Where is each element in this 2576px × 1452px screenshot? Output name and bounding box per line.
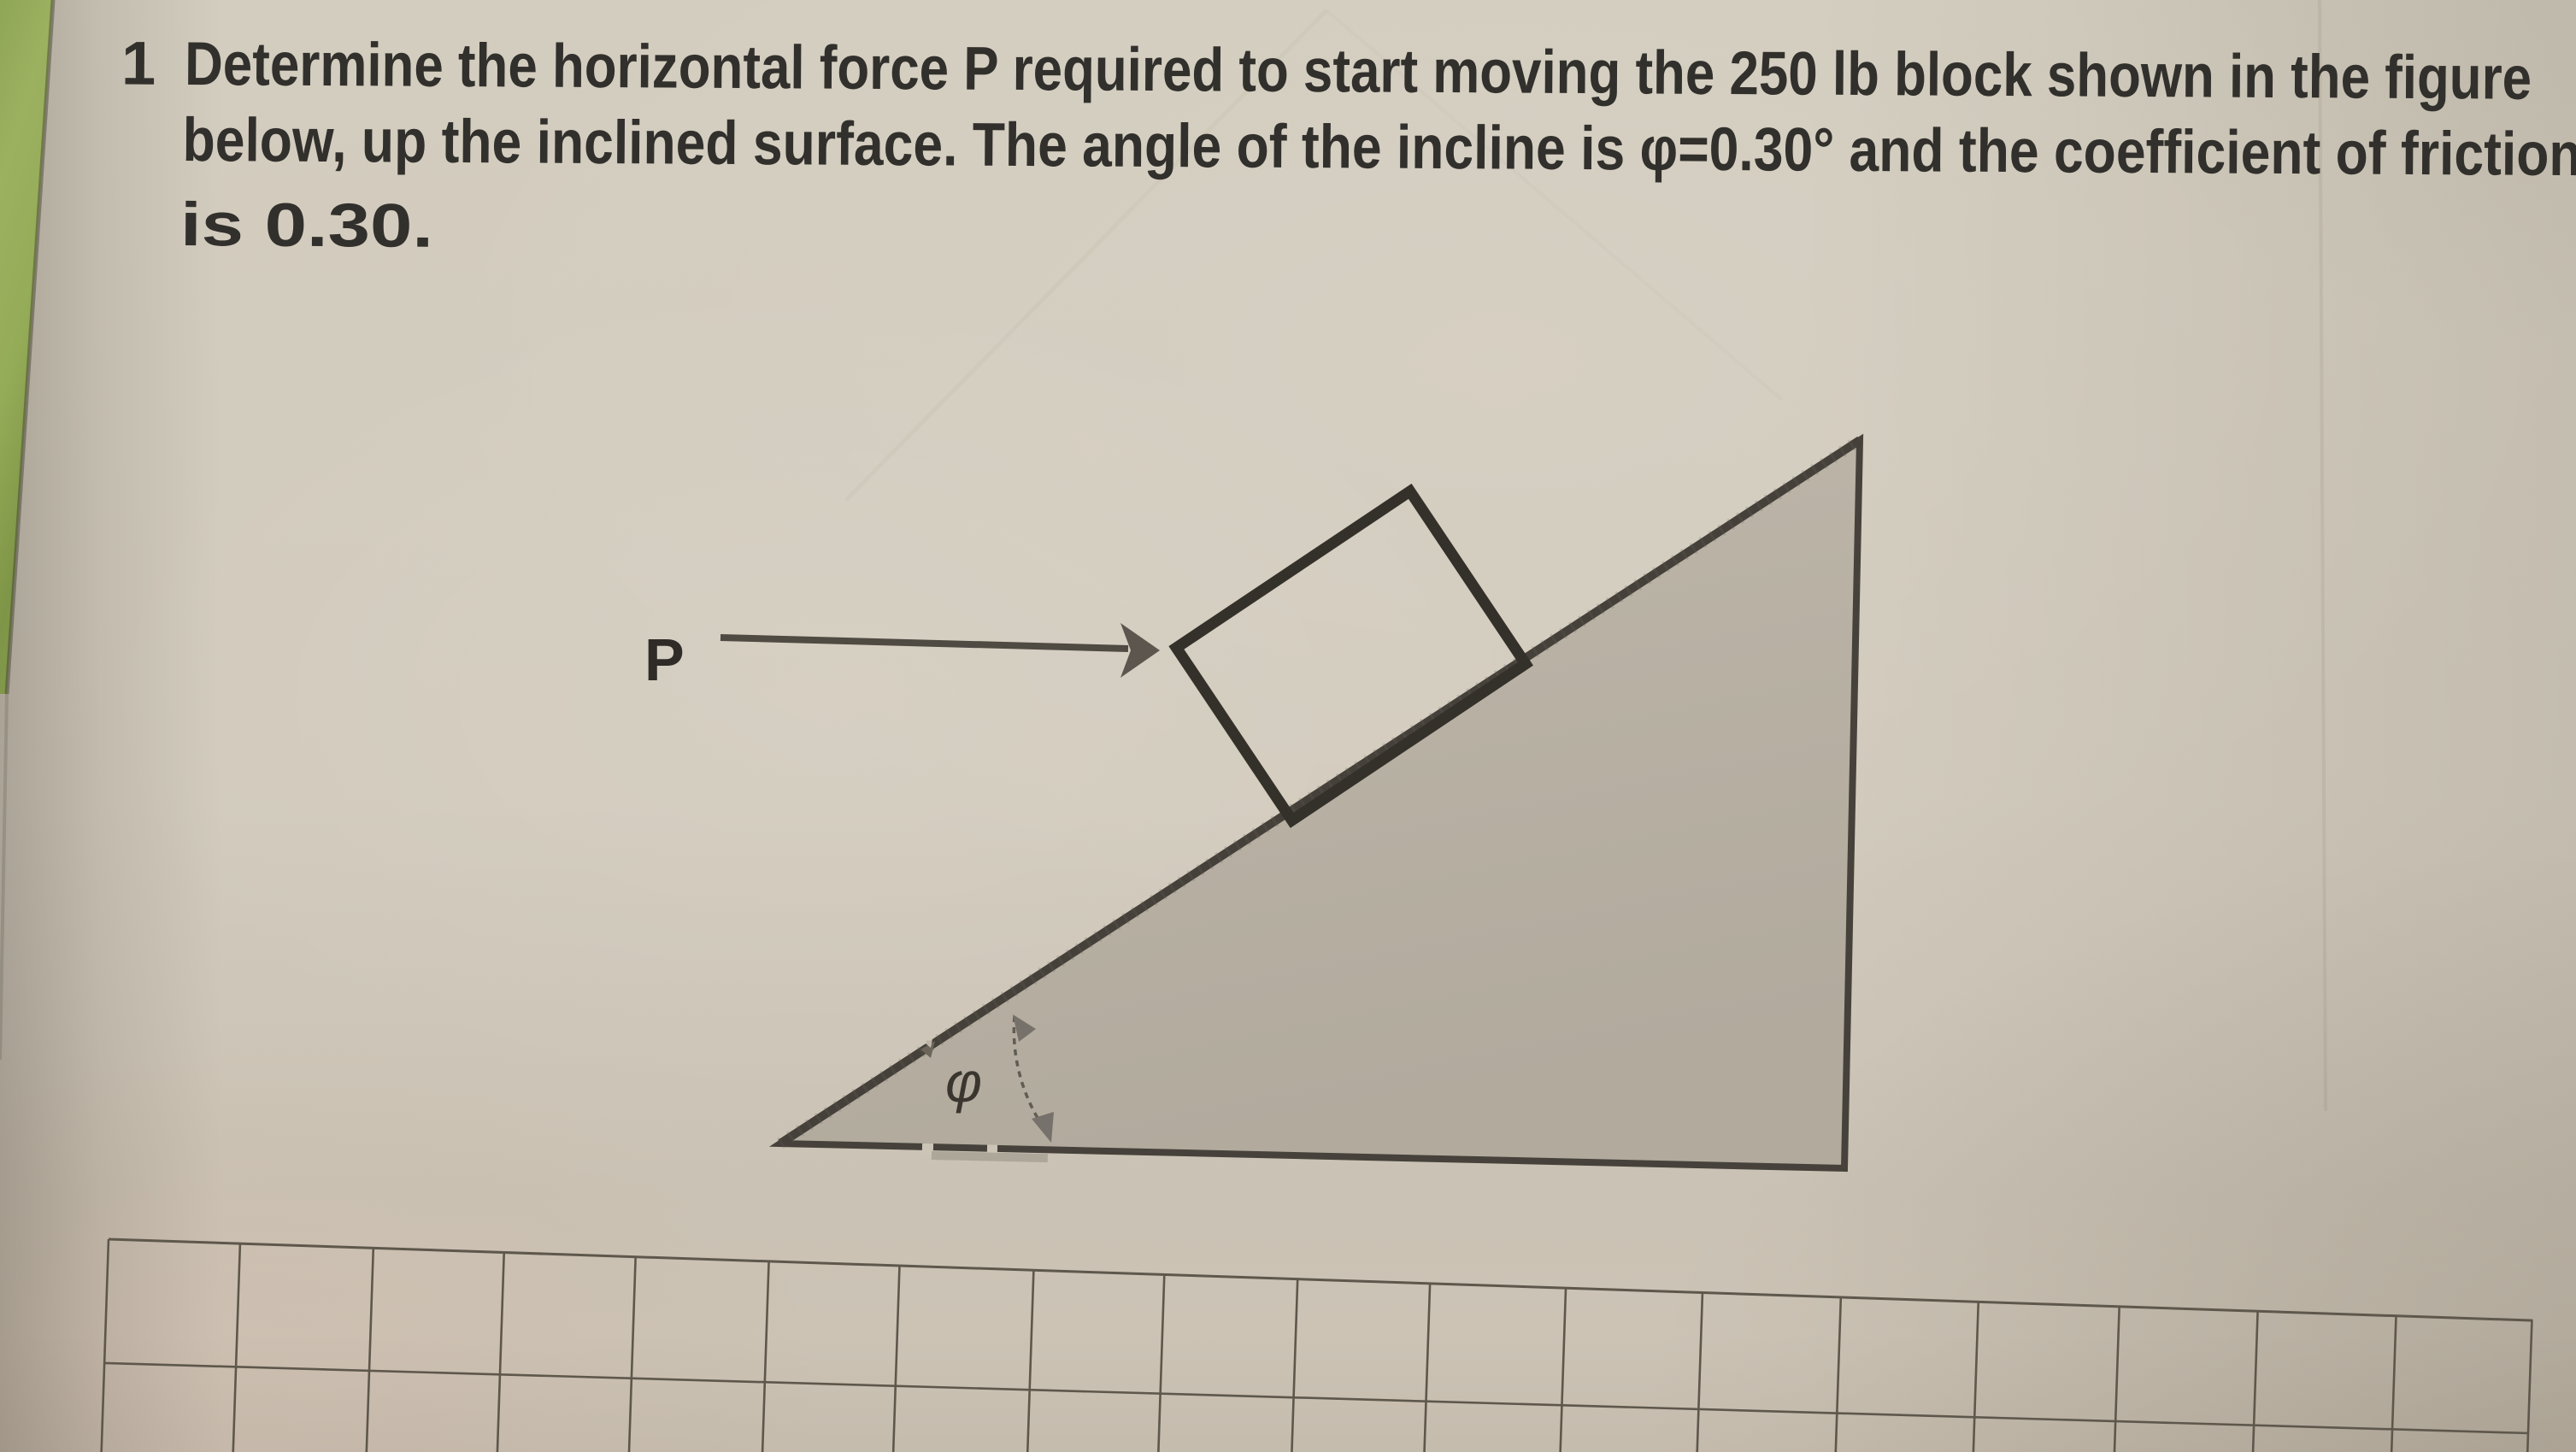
svg-text:P: P: [644, 626, 685, 693]
svg-text:1: 1: [121, 30, 156, 98]
svg-text:is 0.30.: is 0.30.: [180, 191, 433, 261]
svg-text:Determine the horizontal force: Determine the horizontal force P require…: [185, 30, 2532, 113]
svg-text:φ: φ: [945, 1050, 982, 1114]
